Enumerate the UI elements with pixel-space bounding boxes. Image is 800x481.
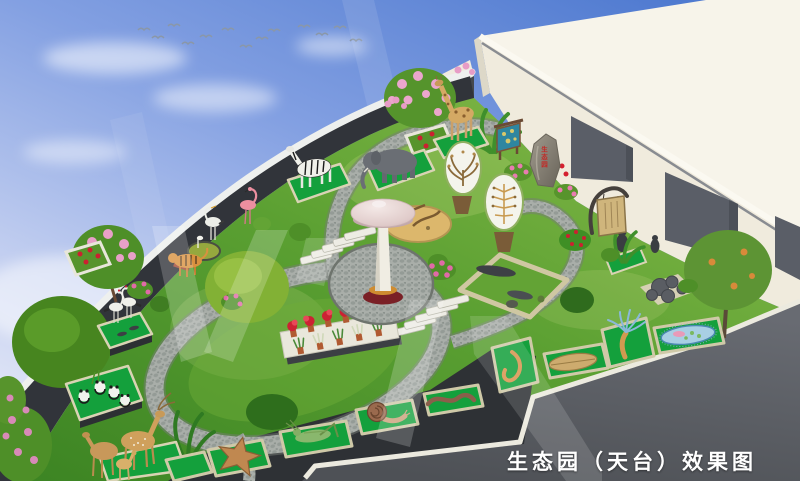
rock-inscription-text: 生态园 [539, 146, 546, 169]
turtle-sculpture [506, 300, 518, 308]
scene [0, 0, 800, 481]
rendering-canvas: 生态园（天台）效果图 生态园 [0, 0, 800, 481]
pink-bush-a [127, 281, 153, 299]
frog-sculpture [538, 296, 545, 303]
round-bush [246, 394, 298, 430]
dark-bush [560, 287, 594, 313]
caption-title: 生态园（天台）效果图 [492, 446, 772, 476]
berry-bush [559, 229, 591, 251]
